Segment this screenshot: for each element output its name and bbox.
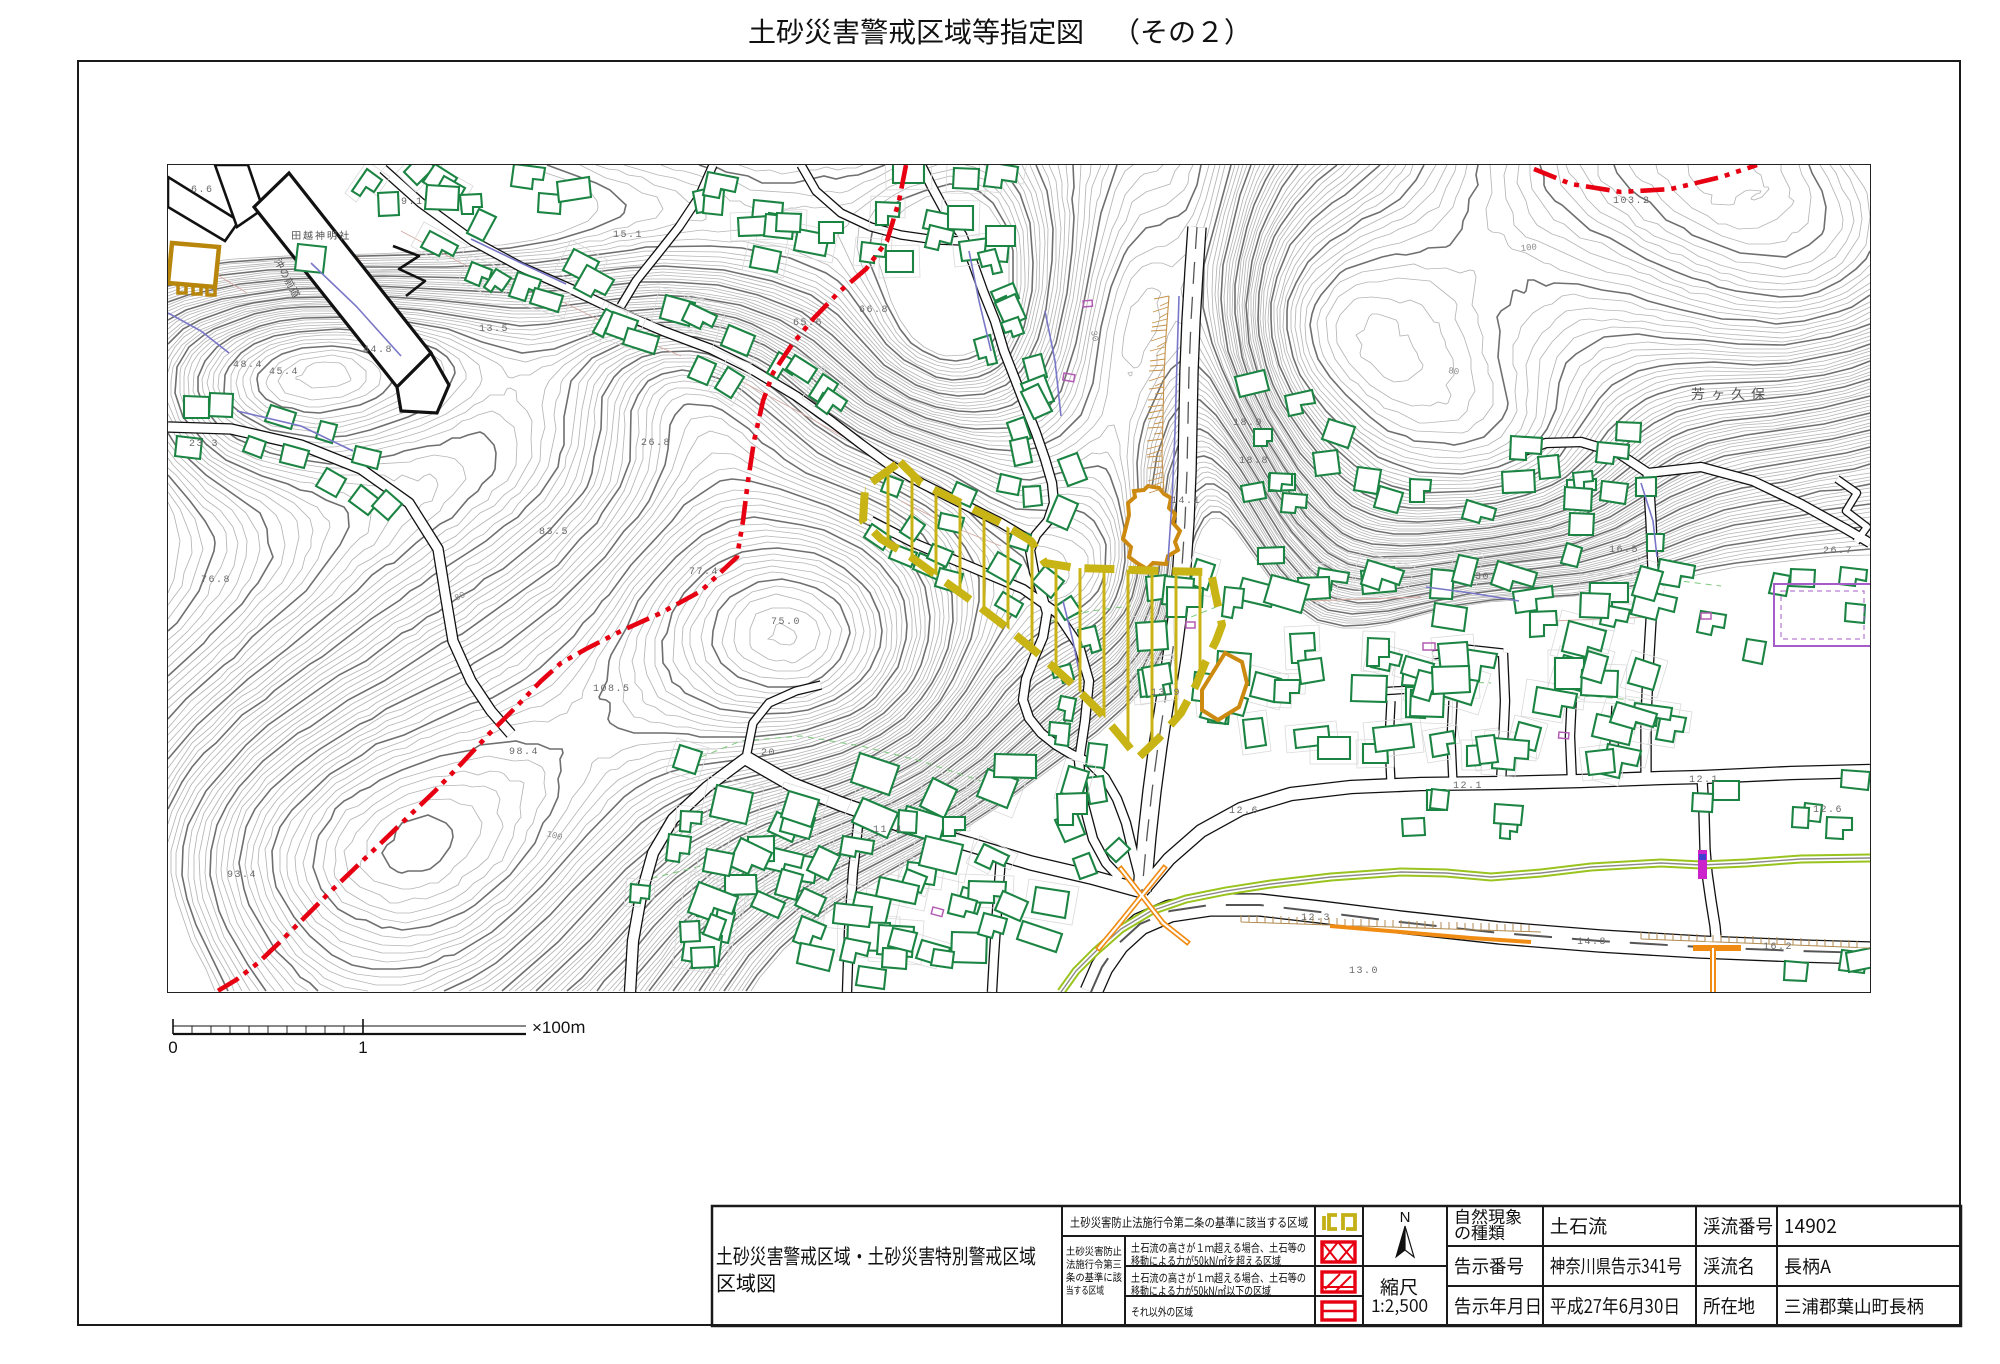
svg-text:田越神明社: 田越神明社 — [291, 227, 351, 242]
svg-text:30: 30 — [1475, 572, 1490, 583]
svg-text:13.5: 13.5 — [479, 324, 509, 335]
svg-text:76.8: 76.8 — [201, 575, 231, 586]
svg-text:告示年月日: 告示年月日 — [1454, 1292, 1542, 1319]
svg-text:神奈川県告示341号: 神奈川県告示341号 — [1550, 1252, 1682, 1279]
svg-text:芳ヶ久保: 芳ヶ久保 — [1691, 384, 1771, 404]
svg-text:12.6: 12.6 — [1229, 806, 1259, 817]
svg-text:1:2,500: 1:2,500 — [1371, 1292, 1428, 1317]
svg-text:三浦郡葉山町長柄: 三浦郡葉山町長柄 — [1784, 1293, 1924, 1319]
svg-text:26.7: 26.7 — [1823, 546, 1853, 557]
svg-text:それ以外の区域: それ以外の区域 — [1131, 1304, 1193, 1320]
svg-text:83.5: 83.5 — [539, 527, 569, 538]
svg-text:告示番号: 告示番号 — [1454, 1252, 1524, 1279]
svg-text:14.8: 14.8 — [1577, 937, 1607, 948]
svg-text:0: 0 — [168, 1038, 177, 1057]
svg-text:100: 100 — [545, 829, 563, 843]
svg-text:77.4: 77.4 — [689, 567, 719, 578]
svg-text:当する区域: 当する区域 — [1066, 1283, 1104, 1298]
svg-text:98.4: 98.4 — [509, 747, 539, 758]
svg-text:12.1: 12.1 — [1689, 775, 1719, 786]
svg-text:長柄A: 長柄A — [1784, 1253, 1831, 1279]
svg-text:14902: 14902 — [1784, 1212, 1837, 1239]
svg-text:80: 80 — [1448, 366, 1460, 377]
svg-text:13.9: 13.9 — [1151, 688, 1181, 699]
svg-text:移動による力が50kN/㎡を超える区域: 移動による力が50kN/㎡を超える区域 — [1131, 1253, 1281, 1269]
svg-text:13.0: 13.0 — [1349, 966, 1379, 977]
svg-text:渓流名: 渓流名 — [1703, 1252, 1755, 1279]
svg-text:12.3: 12.3 — [1301, 913, 1331, 924]
svg-text:23.3: 23.3 — [189, 439, 219, 450]
svg-text:1: 1 — [358, 1038, 367, 1057]
svg-text:100: 100 — [1520, 242, 1537, 254]
svg-text:土砂災害警戒区域・土砂災害特別警戒区域: 土砂災害警戒区域・土砂災害特別警戒区域 — [716, 1241, 1036, 1271]
svg-text:48.4: 48.4 — [233, 360, 263, 371]
svg-text:75.0: 75.0 — [771, 617, 801, 628]
svg-text:12.1: 12.1 — [1453, 781, 1483, 792]
svg-text:土石流: 土石流 — [1550, 1212, 1607, 1239]
svg-text:16.5: 16.5 — [1609, 545, 1639, 556]
svg-text:9.1: 9.1 — [401, 197, 424, 208]
svg-text:11.4: 11.4 — [873, 825, 903, 836]
svg-text:渓流番号: 渓流番号 — [1703, 1212, 1773, 1239]
svg-text:移動による力が50kN/㎡以下の区域: 移動による力が50kN/㎡以下の区域 — [1131, 1283, 1271, 1299]
svg-text:×100m: ×100m — [532, 1013, 586, 1038]
svg-text:16.2: 16.2 — [1763, 942, 1793, 953]
svg-text:土砂災害防止法施行令第二条の基準に該当する区域: 土砂災害防止法施行令第二条の基準に該当する区域 — [1070, 1212, 1308, 1231]
svg-text:N: N — [1400, 1209, 1411, 1226]
svg-text:103.2: 103.2 — [1613, 196, 1651, 207]
svg-text:45.4: 45.4 — [269, 367, 299, 378]
svg-text:所在地: 所在地 — [1703, 1292, 1755, 1319]
svg-text:15.1: 15.1 — [613, 230, 643, 241]
svg-text:108.5: 108.5 — [593, 684, 631, 695]
svg-text:18.9: 18.9 — [1233, 418, 1263, 429]
svg-text:平成27年6月30日: 平成27年6月30日 — [1550, 1292, 1680, 1319]
svg-text:65.6: 65.6 — [793, 318, 823, 329]
svg-text:の種類: の種類 — [1454, 1219, 1505, 1244]
svg-text:14.1: 14.1 — [1171, 496, 1201, 507]
svg-text:26.8: 26.8 — [641, 438, 671, 449]
svg-text:30: 30 — [1088, 330, 1100, 342]
svg-text:12.6: 12.6 — [1813, 805, 1843, 816]
svg-text:20: 20 — [761, 748, 776, 759]
svg-text:44.8: 44.8 — [363, 345, 393, 356]
svg-text:66.8: 66.8 — [859, 305, 889, 316]
svg-text:18.8: 18.8 — [1239, 456, 1269, 467]
svg-text:6.6: 6.6 — [191, 185, 214, 196]
svg-text:93.4: 93.4 — [227, 870, 257, 881]
svg-text:区域図: 区域図 — [716, 1268, 776, 1298]
